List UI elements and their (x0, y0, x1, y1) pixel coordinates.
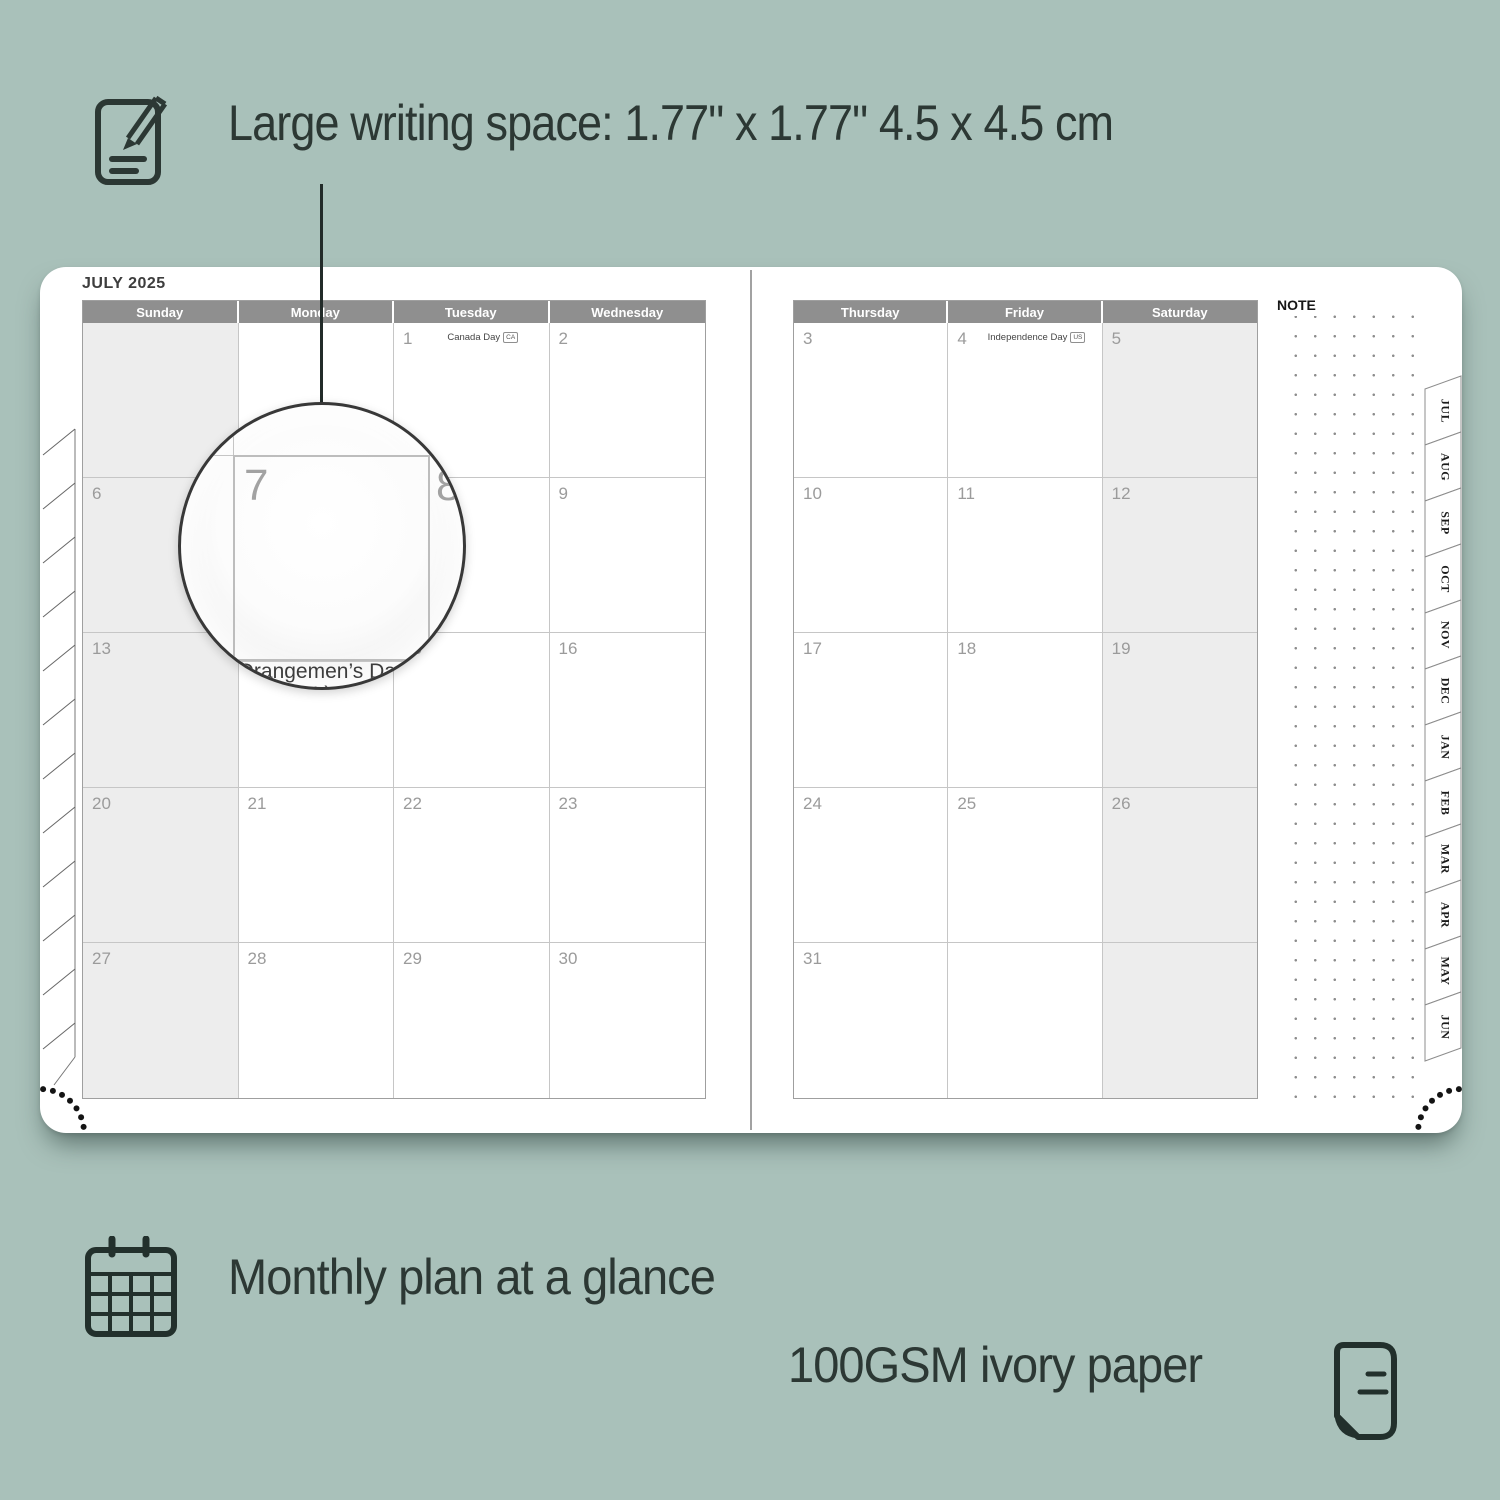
day-number: 22 (403, 794, 422, 814)
corner-stitch-left (37, 1066, 107, 1136)
calendar-cell: 19 (1103, 633, 1257, 788)
calendar-grid-icon (84, 1236, 178, 1343)
calendar-cell: 5 (1103, 323, 1257, 478)
day-number: 5 (1112, 329, 1121, 349)
day-header-friday: Friday (948, 301, 1102, 323)
page-gutter (750, 270, 752, 1130)
calendar-cell: 25 (948, 788, 1102, 943)
holiday-badge: US (1070, 332, 1085, 343)
month-tab-label: FEB (1438, 791, 1452, 816)
calendar-cell: 30 (550, 943, 706, 1098)
month-title: JULY 2025 (82, 275, 166, 293)
calendar-cell: 4Independence DayUS (948, 323, 1102, 478)
lens-next-day-number: 8 (436, 461, 460, 511)
calendar-cell (948, 943, 1102, 1098)
calendar-cell: 23 (550, 788, 706, 943)
day-number: 11 (957, 484, 975, 504)
day-number: 20 (92, 794, 111, 814)
paper-icon (1320, 1340, 1406, 1447)
calendar-cell: 24 (794, 788, 948, 943)
calendar-cell: 2 (550, 323, 706, 478)
day-number: 29 (403, 949, 422, 969)
day-number: 24 (803, 794, 822, 814)
day-number: 9 (559, 484, 568, 504)
calendar-cell: 18 (948, 633, 1102, 788)
feature-monthly-text: Monthly plan at a glance (228, 1248, 715, 1306)
month-tab-label: APR (1438, 902, 1452, 928)
day-header-monday: Monday (239, 301, 395, 323)
day-number: 4 (957, 329, 966, 349)
calendar-cell: 21 (239, 788, 395, 943)
day-number: 13 (92, 639, 111, 659)
calendar-cell: 16 (550, 633, 706, 788)
day-number: 27 (92, 949, 111, 969)
day-number: 21 (248, 794, 267, 814)
month-tab-label: OCT (1438, 565, 1452, 593)
calendar-cell: 17 (794, 633, 948, 788)
day-number: 16 (559, 639, 578, 659)
callout-pointer-line (320, 184, 323, 406)
magnifier-lens: 7 8 Orangemen’s Day (N.I.) (178, 402, 466, 690)
lens-holiday-line1: Orangemen’s Day (238, 660, 407, 683)
calendar-grid-right: ThursdayFridaySaturday34Independence Day… (793, 300, 1258, 1099)
month-tab-label: JUN (1438, 1015, 1452, 1040)
month-tab-label: SEP (1438, 511, 1452, 535)
day-number: 19 (1112, 639, 1131, 659)
calendar-cell: 28 (239, 943, 395, 1098)
calendar-cell: 13 (83, 633, 239, 788)
day-header-saturday: Saturday (1103, 301, 1257, 323)
calendar-cell (1103, 943, 1257, 1098)
month-tab-label: JAN (1438, 735, 1452, 760)
day-number: 3 (803, 329, 812, 349)
holiday-label: Independence DayUS (974, 332, 1098, 343)
calendar-cell: 31 (794, 943, 948, 1098)
day-number: 10 (803, 484, 822, 504)
month-tab-label: NOV (1438, 621, 1452, 649)
day-number: 23 (559, 794, 578, 814)
month-tab-label: JUL (1438, 399, 1452, 423)
lens-grid-line (430, 405, 431, 455)
page-edge-hatch (42, 393, 78, 1093)
calendar-cell: 12 (1103, 478, 1257, 633)
day-number: 6 (92, 484, 101, 504)
pencil-note-icon (92, 80, 174, 195)
day-header-tuesday: Tuesday (394, 301, 550, 323)
lens-holiday-label: Orangemen’s Day (N.I.) (189, 660, 455, 690)
calendar-cell: 11 (948, 478, 1102, 633)
holiday-label: Canada DayCA (420, 332, 546, 343)
headline-text: Large writing space: 1.77" x 1.77" 4.5 x… (228, 94, 1113, 152)
day-number: 18 (957, 639, 976, 659)
day-number: 17 (803, 639, 822, 659)
calendar-cell: 10 (794, 478, 948, 633)
open-planner: JULY 2025 SundayMondayTuesdayWednesday1C… (40, 267, 1462, 1133)
lens-day-number: 7 (244, 461, 268, 511)
day-number: 12 (1112, 484, 1131, 504)
calendar-cell: 9 (550, 478, 706, 633)
calendar-grid-left: SundayMondayTuesdayWednesday1Canada DayC… (82, 300, 706, 1099)
month-tab-label: AUG (1438, 453, 1452, 481)
month-tabs: JULAUGSEPOCTNOVDECJANFEBMARAPRMAYJUN (1424, 375, 1462, 1063)
note-label: NOTE (1277, 297, 1324, 316)
day-number: 25 (957, 794, 976, 814)
calendar-cell: 20 (83, 788, 239, 943)
day-number: 26 (1112, 794, 1131, 814)
day-number: 1 (403, 329, 412, 349)
corner-stitch-right (1395, 1066, 1465, 1136)
day-number: 30 (559, 949, 578, 969)
lens-grid-line (233, 405, 234, 455)
calendar-cell: 29 (394, 943, 550, 1098)
note-dot-grid (1283, 301, 1425, 1113)
calendar-cell: 22 (394, 788, 550, 943)
day-header-wednesday: Wednesday (550, 301, 706, 323)
month-tab-label: MAY (1438, 956, 1452, 985)
day-number: 2 (559, 329, 568, 349)
feature-paper-text: 100GSM ivory paper (788, 1336, 1202, 1394)
month-tab-label: DEC (1438, 678, 1452, 705)
month-tab-label: MAR (1438, 844, 1452, 874)
day-header-thursday: Thursday (794, 301, 948, 323)
day-header-sunday: Sunday (83, 301, 239, 323)
day-number: 31 (803, 949, 822, 969)
calendar-cell: 26 (1103, 788, 1257, 943)
holiday-badge: CA (503, 332, 518, 343)
day-number: 28 (248, 949, 267, 969)
calendar-cell: 3 (794, 323, 948, 478)
